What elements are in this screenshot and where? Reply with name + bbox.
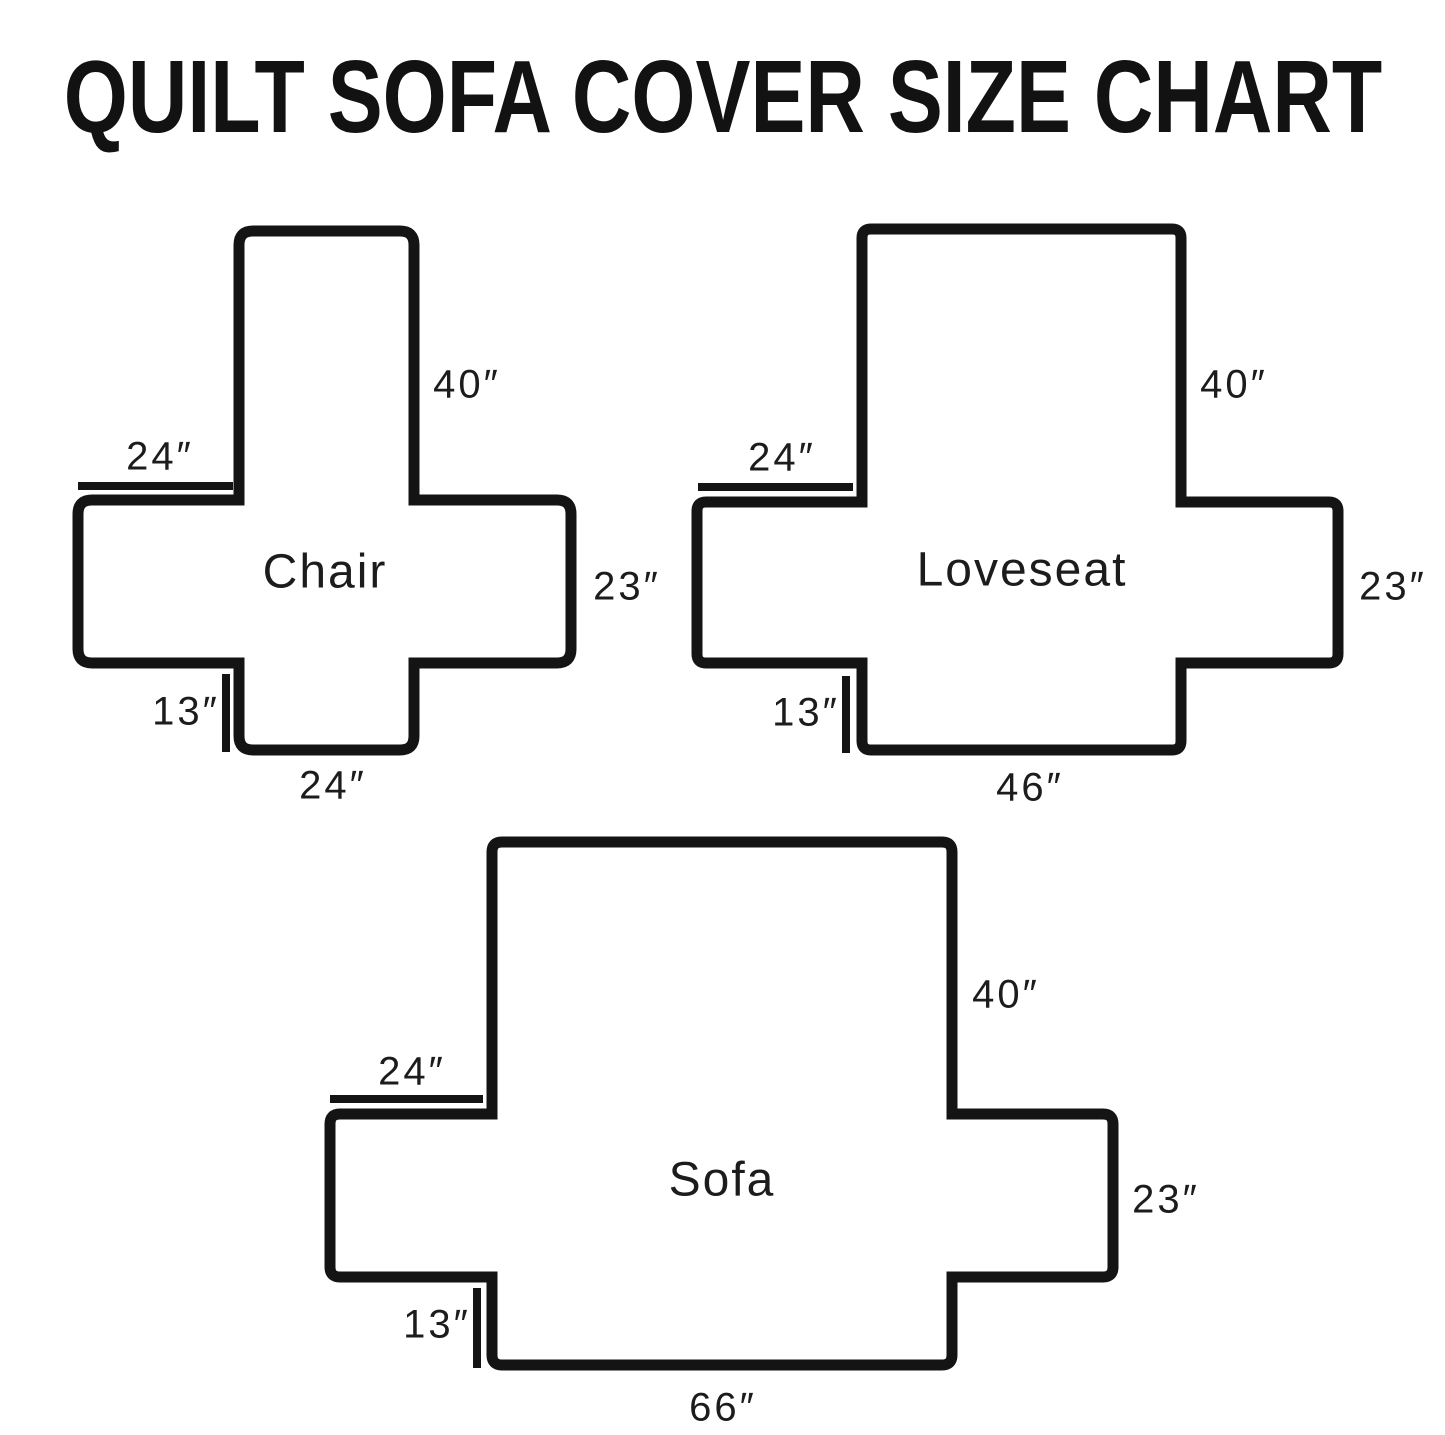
sofa-seat-width-label: 66″ (689, 1386, 757, 1431)
sofa-figure (330, 842, 1113, 1368)
chair-seat-width-label: 24″ (299, 764, 367, 809)
chair-outline (78, 231, 571, 750)
size-chart-page: QUILT SOFA COVER SIZE CHART 40″ 24″ Chai… (0, 0, 1445, 1435)
sofa-back-height-label: 40″ (972, 973, 1040, 1018)
chair-name-label: Chair (263, 545, 388, 600)
loveseat-flap-height-label: 13″ (772, 691, 840, 736)
chair-figure (78, 231, 571, 752)
chair-arm-width-label: 24″ (126, 435, 194, 480)
sofa-arm-width-label: 24″ (378, 1050, 446, 1095)
loveseat-back-height-label: 40″ (1200, 363, 1268, 408)
loveseat-arm-width-label: 24″ (748, 436, 816, 481)
loveseat-seat-width-label: 46″ (996, 766, 1064, 811)
chair-back-height-label: 40″ (433, 363, 501, 408)
chair-flap-height-label: 13″ (152, 690, 220, 735)
sofa-outline (330, 842, 1113, 1365)
chair-side-depth-label: 23″ (593, 565, 661, 610)
loveseat-side-depth-label: 23″ (1359, 565, 1427, 610)
sofa-flap-height-label: 13″ (403, 1303, 471, 1348)
sofa-side-depth-label: 23″ (1132, 1178, 1200, 1223)
loveseat-figure (697, 229, 1338, 753)
sofa-name-label: Sofa (669, 1153, 776, 1208)
loveseat-name-label: Loveseat (917, 543, 1128, 598)
